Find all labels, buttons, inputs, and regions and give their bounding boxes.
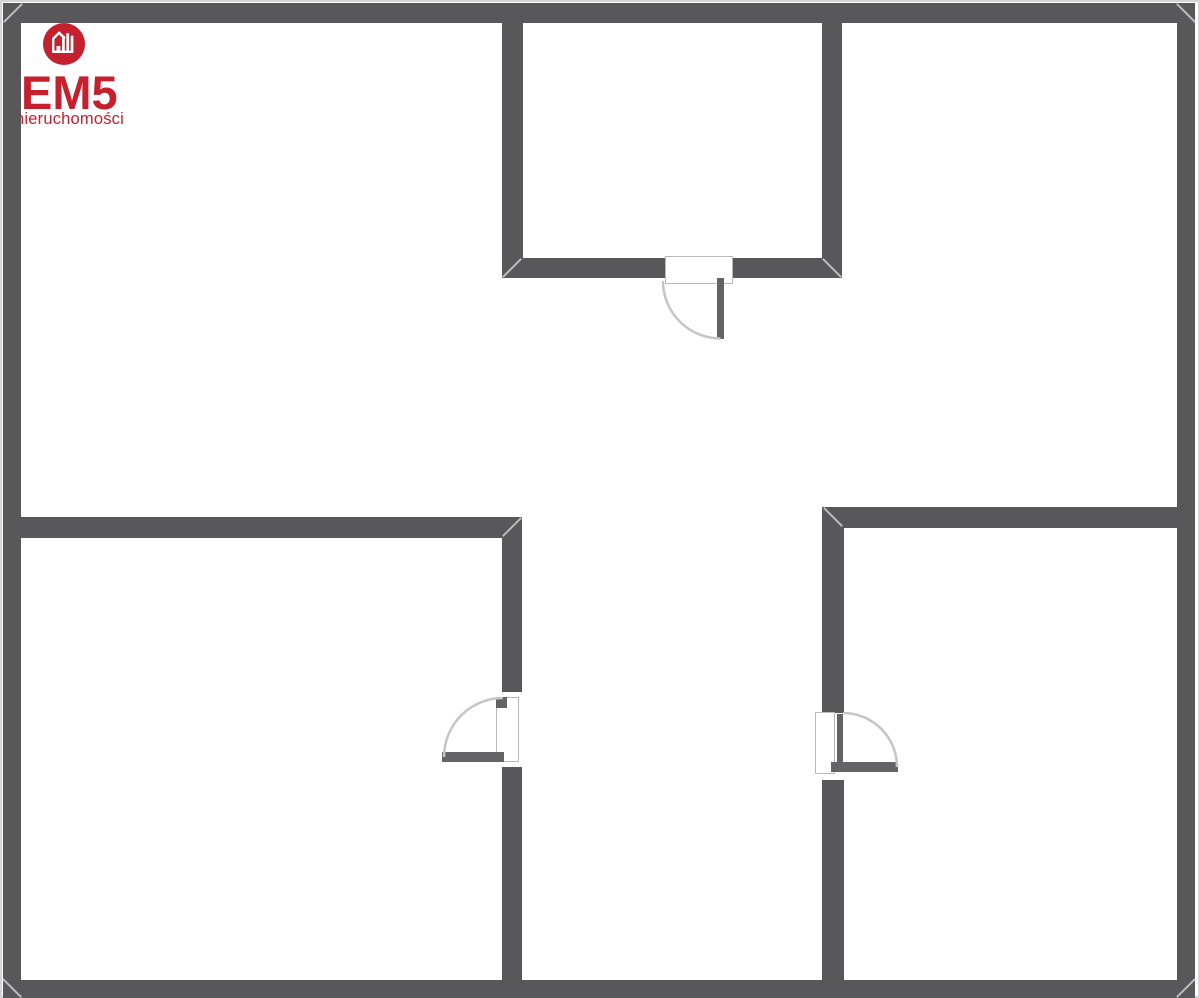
outer-wall-right	[1177, 3, 1195, 998]
left-room-door-block	[496, 697, 507, 708]
top-room-right-wall	[822, 23, 842, 278]
right-room-top-wall	[822, 507, 1177, 528]
top-room-door-leaf	[717, 278, 724, 339]
left-room-right-wall-lower	[502, 767, 522, 980]
brand-tagline: nieruchomości	[15, 111, 124, 128]
left-room-door-leaf	[442, 752, 504, 762]
house-buildings-icon	[42, 22, 86, 66]
brand-name: EM5	[21, 69, 118, 116]
top-room-left-wall	[502, 23, 523, 278]
right-room-door-leaf	[831, 762, 898, 772]
building-bar	[71, 36, 74, 52]
top-room-bottom-wall-left	[502, 258, 665, 278]
house-door	[56, 46, 60, 52]
outer-wall-left	[3, 3, 21, 998]
left-room-right-wall-upper	[502, 517, 522, 692]
outer-wall-bottom	[3, 980, 1195, 998]
right-room-door-block	[837, 714, 843, 767]
em5-logo: EM5 nieruchomości	[0, 0, 200, 160]
left-room-top-wall	[21, 517, 522, 538]
right-room-left-wall-upper	[822, 507, 844, 713]
building-bar	[62, 36, 65, 52]
floorplan-canvas: EM5 nieruchomości	[0, 0, 1200, 998]
outer-wall-top	[3, 3, 1195, 23]
right-room-left-wall-lower	[822, 780, 844, 980]
building-bar	[66, 33, 69, 52]
